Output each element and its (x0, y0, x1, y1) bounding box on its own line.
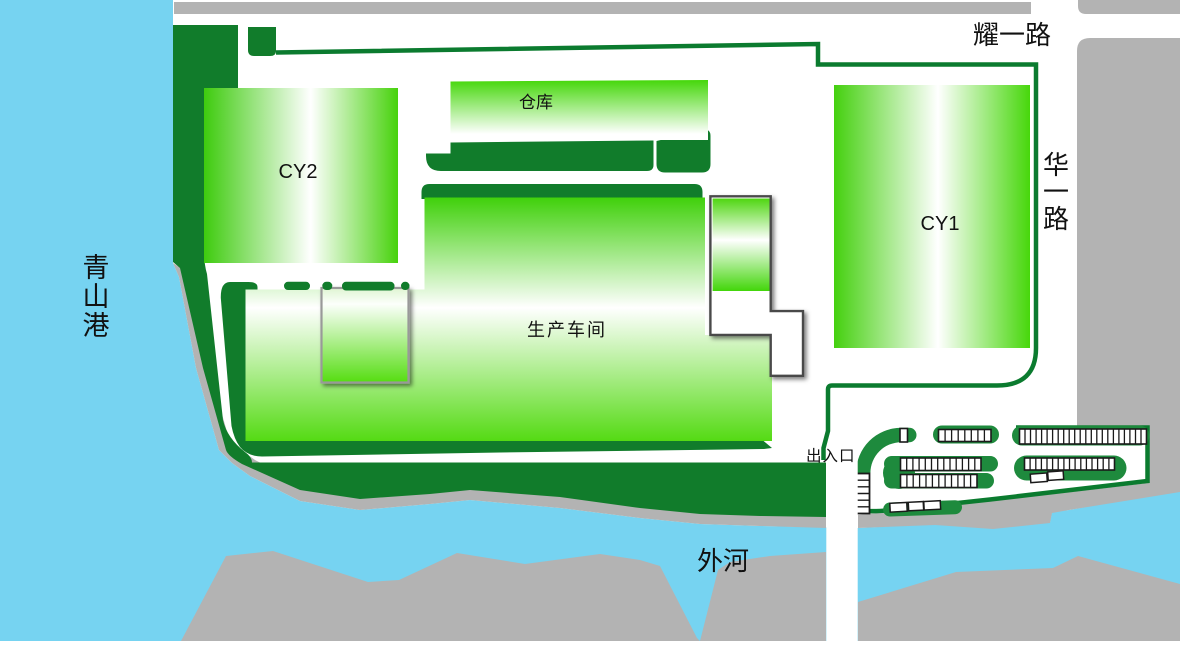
svg-text:华: 华 (1043, 150, 1069, 180)
svg-text:耀一路: 耀一路 (973, 20, 1051, 50)
svg-text:一: 一 (1043, 177, 1069, 207)
svg-text:出入口: 出入口 (806, 447, 856, 465)
svg-text:CY2: CY2 (279, 161, 318, 183)
svg-text:外河: 外河 (697, 546, 749, 576)
svg-text:港: 港 (83, 311, 110, 341)
svg-text:CY1: CY1 (921, 213, 960, 235)
svg-text:青: 青 (83, 253, 110, 283)
svg-text:路: 路 (1043, 204, 1069, 234)
svg-text:山: 山 (83, 282, 110, 312)
svg-text:仓库: 仓库 (519, 93, 553, 112)
svg-text:生产车间: 生产车间 (527, 320, 607, 340)
